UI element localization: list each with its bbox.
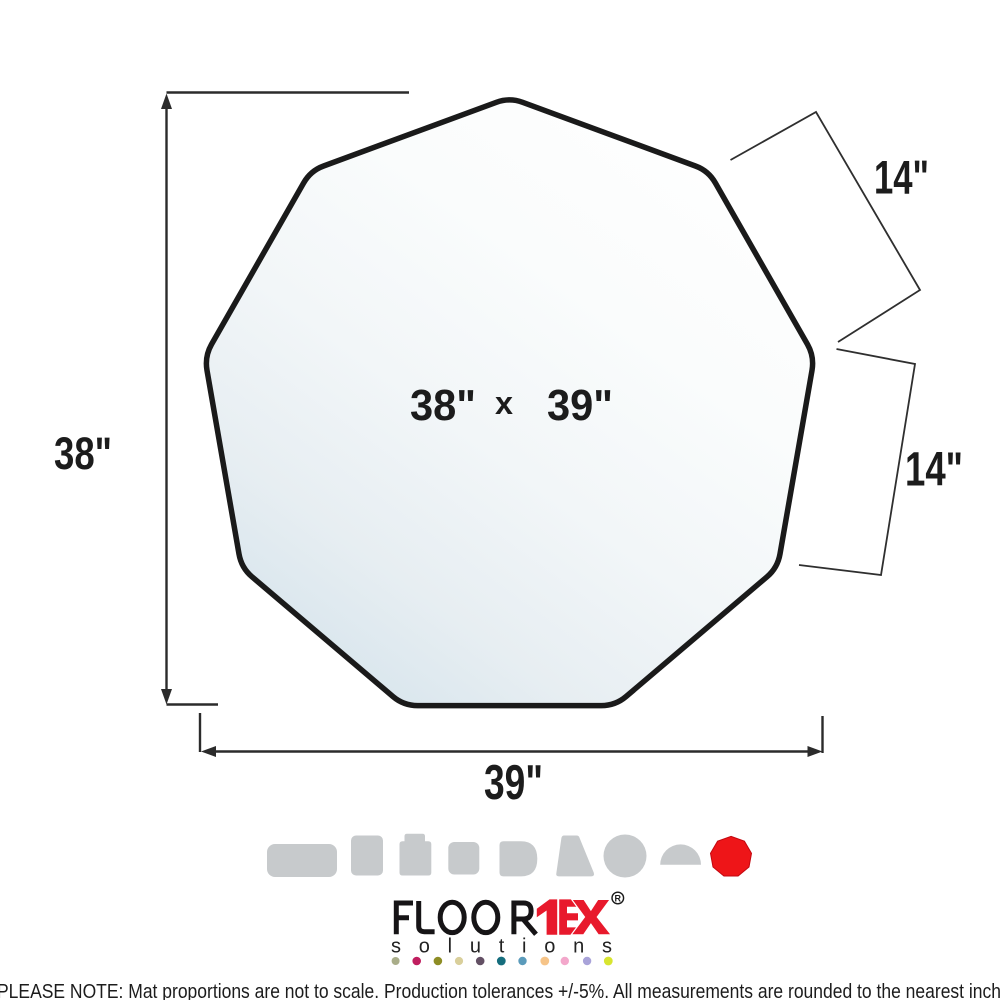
svg-text:14": 14" <box>905 444 963 497</box>
svg-text:38": 38" <box>54 428 112 479</box>
svg-text:PLEASE NOTE: Mat proportions a: PLEASE NOTE: Mat proportions are not to … <box>0 980 1000 1000</box>
svg-text:39": 39" <box>484 756 543 810</box>
svg-text:39": 39" <box>547 381 613 430</box>
svg-text:38": 38" <box>410 381 476 430</box>
svg-text:solutions: solutions <box>391 936 612 958</box>
svg-text:R: R <box>615 894 622 904</box>
svg-text:14": 14" <box>874 151 929 204</box>
svg-text:x: x <box>495 385 513 421</box>
